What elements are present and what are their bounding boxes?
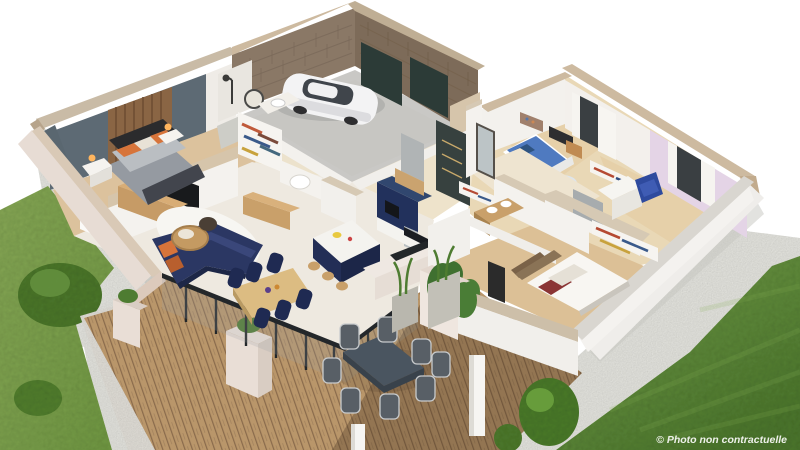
svg-text:© Photo non contractuelle: © Photo non contractuelle [656, 434, 787, 446]
